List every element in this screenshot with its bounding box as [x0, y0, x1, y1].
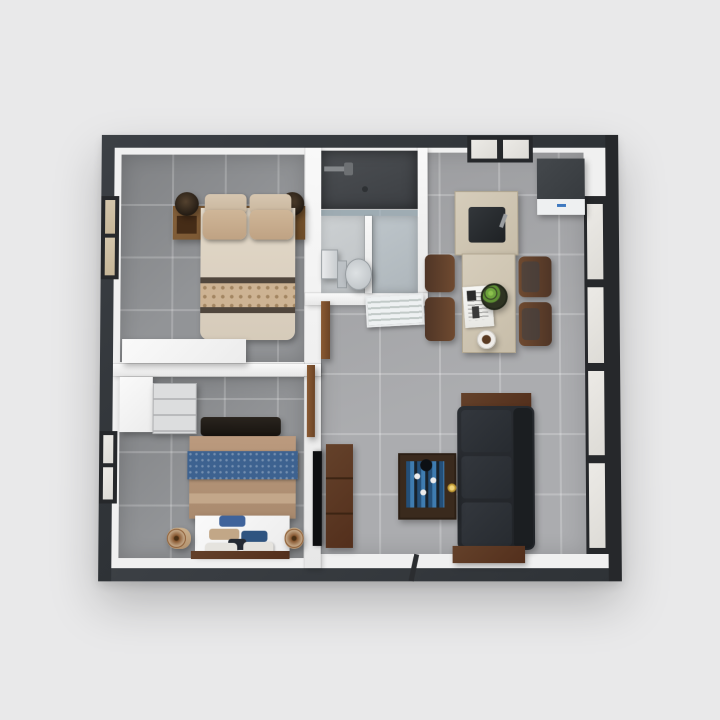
bed2-headboard [201, 417, 281, 436]
dining-chair [425, 297, 455, 341]
gold-ornament [447, 483, 456, 492]
dining-chair [425, 254, 455, 292]
shower-pipe [324, 166, 346, 171]
bedroom1-desk [122, 339, 246, 363]
coffee-table [398, 453, 456, 519]
chair-seat [521, 261, 539, 292]
sofa-body [457, 406, 535, 550]
window-wall-right [584, 196, 609, 554]
chair-seat [522, 308, 540, 340]
dining-chair [518, 256, 551, 297]
fruit-bowl [481, 283, 508, 310]
sofa-cushion [461, 456, 511, 498]
bathroom-sink [321, 250, 338, 280]
newspaper-photo [472, 306, 480, 318]
bolster-end [285, 529, 304, 548]
console-shelf-line [326, 477, 353, 479]
floor-plan [98, 135, 622, 581]
console-shelf-line [326, 513, 353, 515]
sofa-cushion [461, 410, 511, 452]
window-pane [103, 435, 113, 463]
bedroom1-bed [200, 194, 295, 340]
toilet-bowl [345, 258, 372, 290]
tv-console [326, 444, 353, 548]
bed2-blue-runner [187, 451, 297, 479]
bed1-front-pillow [249, 210, 293, 240]
teapot [420, 459, 432, 471]
window-pane [105, 200, 115, 234]
refrigerator-logo [557, 204, 566, 207]
bed1-stripe [200, 307, 295, 313]
window-pane [587, 204, 604, 279]
window-pane [587, 287, 604, 363]
bedroom2-wardrobe [119, 377, 152, 432]
window-pane [588, 371, 605, 455]
refrigerator [537, 159, 585, 215]
window-pane [589, 463, 606, 548]
island-sink-module [454, 191, 518, 255]
bedroom2-door-leaf [307, 365, 315, 437]
outer-wall-top [102, 135, 618, 148]
dining-chair [519, 302, 552, 346]
window-pane [503, 140, 529, 159]
folded-linen-blue [219, 516, 245, 527]
shower-area [321, 151, 418, 210]
window-pane [471, 140, 497, 159]
bathroom-louvered-door [365, 293, 425, 328]
bath-stall-floor [372, 216, 418, 293]
scene-background [0, 0, 720, 720]
shower-drain [362, 186, 368, 192]
window-pane [103, 467, 113, 499]
window-pane [105, 238, 115, 276]
sofa-cushion [461, 502, 511, 545]
bed1-front-pillow [203, 210, 247, 240]
sofa-wood-cap-bottom [453, 546, 526, 563]
bedroom1-window [101, 196, 120, 279]
tray-cup [414, 473, 420, 479]
wall-bedroom1-bedroom2 [113, 364, 321, 376]
bedroom1-door-leaf [321, 301, 330, 359]
bolster-cushion-left [167, 528, 191, 549]
bolster-cushion-right [285, 528, 304, 549]
bed2-duvet-fold [189, 493, 296, 503]
wall-mounted-tv [313, 451, 322, 546]
bedroom2-window [99, 431, 118, 503]
sofa [452, 393, 537, 563]
table-lamp-left [175, 192, 199, 216]
kitchen-top-window [467, 136, 533, 163]
tray-cup [420, 489, 426, 495]
coffee-cup [477, 330, 496, 349]
newspaper-photo [467, 290, 477, 301]
bed2-wood-base [191, 551, 290, 559]
bed1-patterned-band [200, 283, 295, 307]
nightstand-niche-left [177, 216, 197, 234]
shower-head [344, 163, 353, 176]
outer-wall-bottom [98, 568, 622, 581]
sofa-backrest [513, 408, 533, 548]
bedroom2-bed [187, 417, 298, 559]
tray-cup [430, 477, 436, 483]
bolster-end [167, 529, 186, 548]
